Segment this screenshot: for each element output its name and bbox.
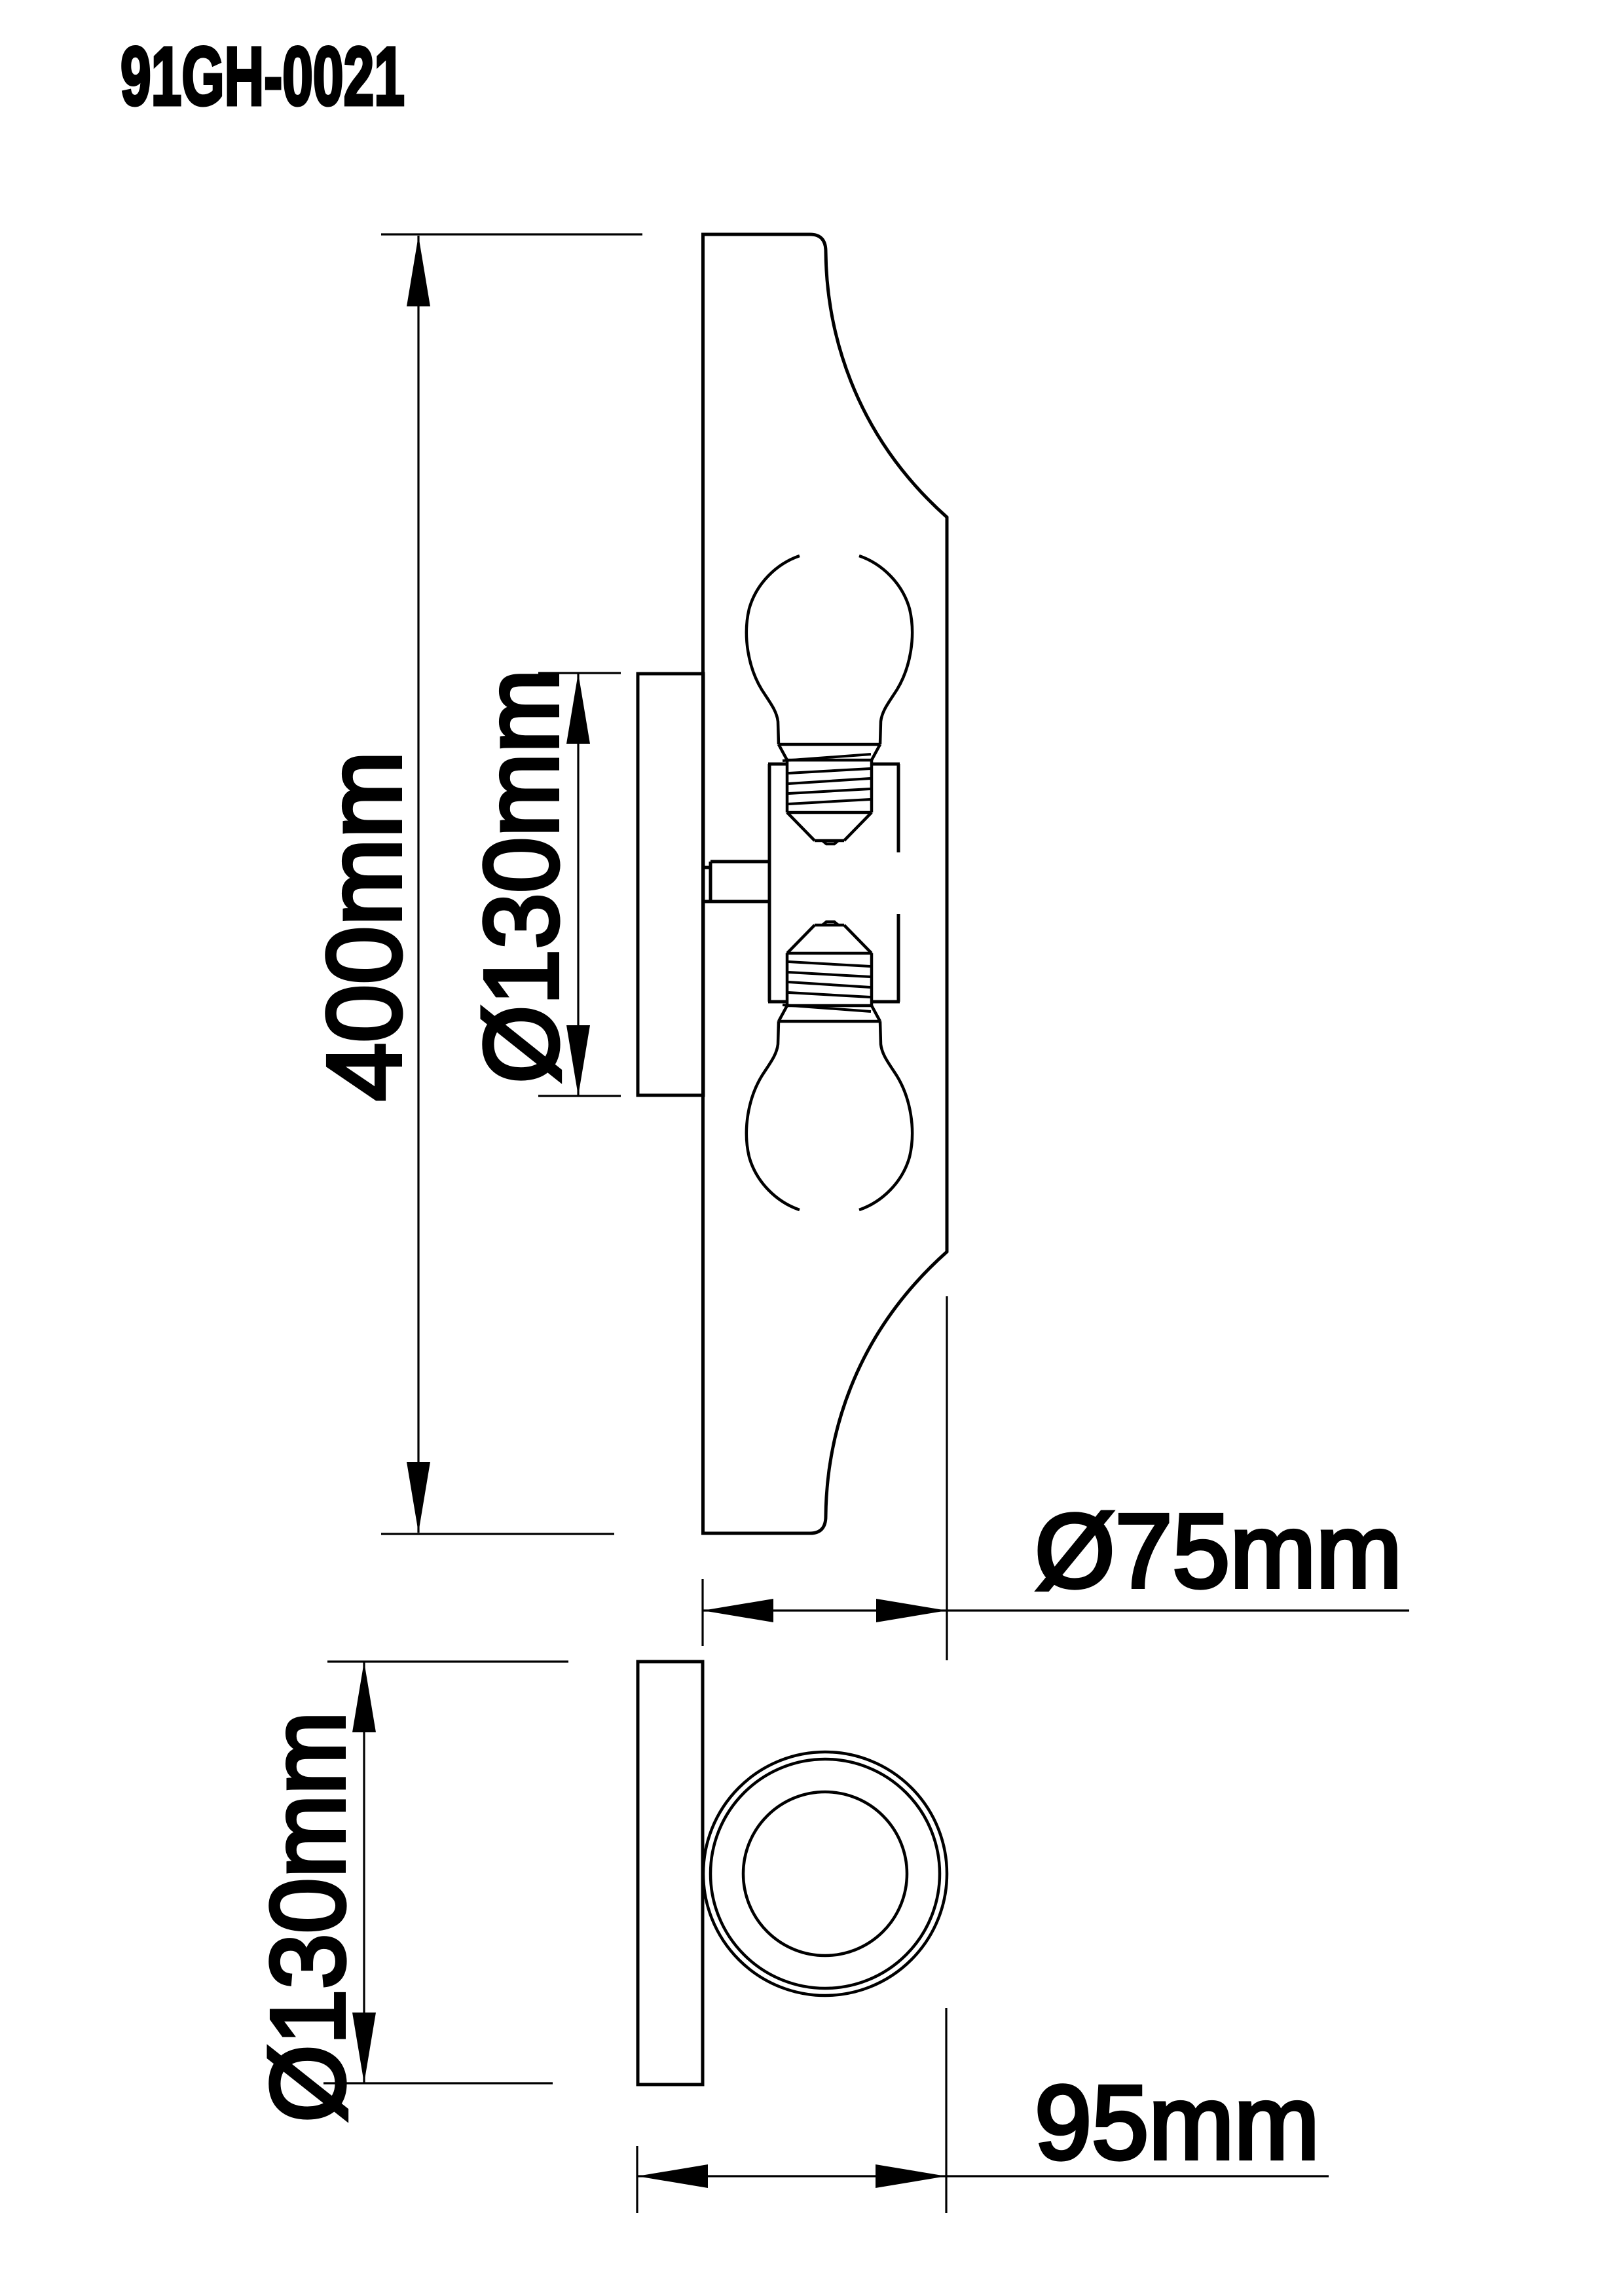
- svg-text:Ø75mm: Ø75mm: [1035, 1492, 1402, 1609]
- svg-text:Ø130mm: Ø130mm: [249, 1711, 366, 2123]
- svg-text:Ø130mm: Ø130mm: [462, 669, 580, 1084]
- svg-text:400mm: 400mm: [305, 751, 422, 1101]
- svg-text:91GH-0021: 91GH-0021: [120, 30, 405, 122]
- svg-text:95mm: 95mm: [1035, 2064, 1319, 2181]
